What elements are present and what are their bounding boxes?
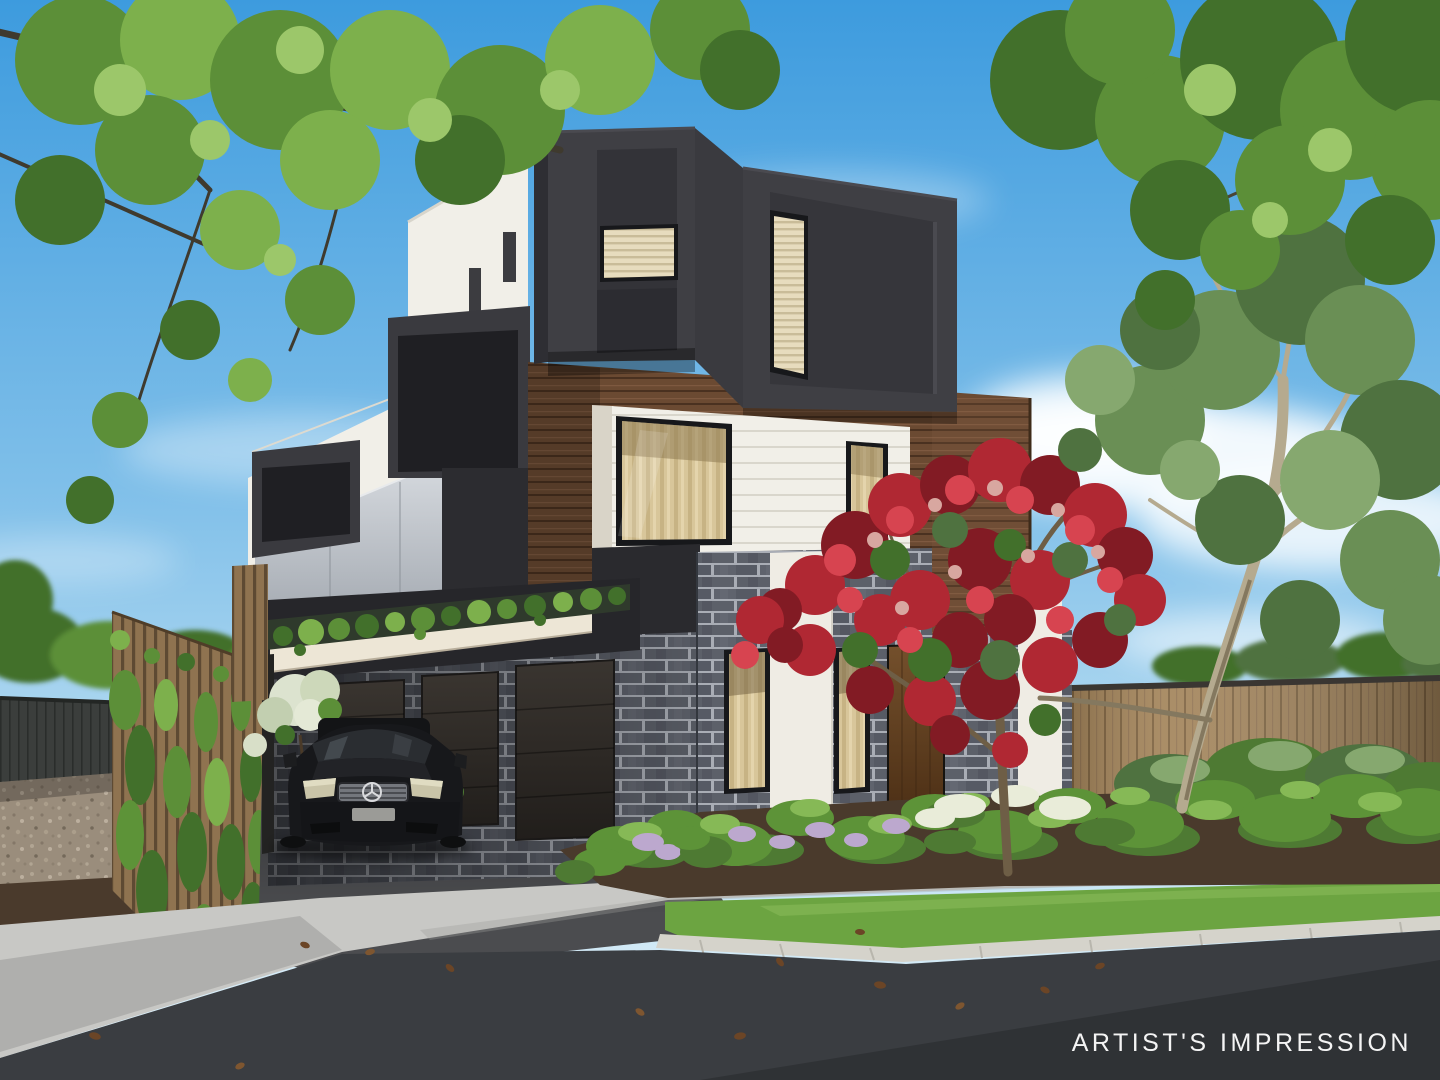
slit-window	[503, 232, 516, 282]
upper-charcoal-box-left	[534, 128, 695, 364]
carport-batten-screen	[232, 564, 268, 702]
artist-impression-render: ARTIST'S IMPRESSION	[0, 0, 1440, 1080]
headlight	[303, 778, 336, 799]
charcoal-link-wall	[695, 128, 743, 408]
grille	[338, 783, 408, 802]
headlight	[410, 778, 443, 799]
garage-door	[516, 660, 614, 840]
balcony-hood	[252, 440, 360, 558]
front-window	[724, 648, 770, 794]
render-canvas	[0, 0, 1440, 1080]
watermark-text: ARTIST'S IMPRESSION	[1072, 1029, 1412, 1058]
licence-plate	[352, 808, 395, 821]
upper-charcoal-box-right	[743, 168, 957, 424]
picture-window	[616, 416, 732, 546]
